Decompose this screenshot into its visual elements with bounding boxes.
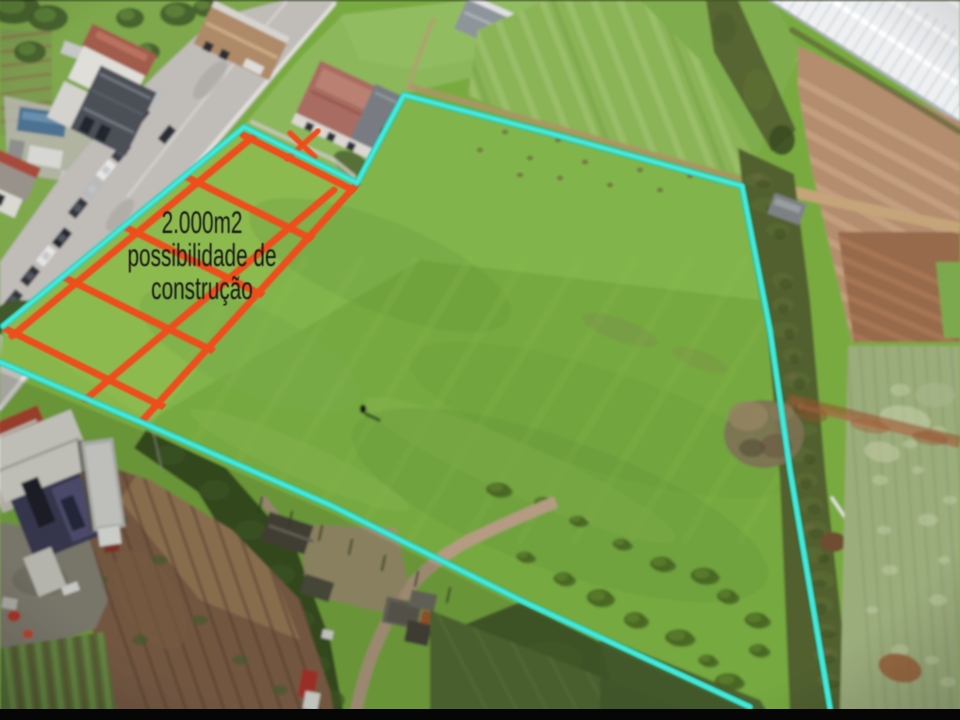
svg-text:construção: construção: [151, 271, 253, 306]
svg-text:2.000m2: 2.000m2: [162, 205, 243, 240]
svg-text:possibilidade de: possibilidade de: [127, 238, 276, 273]
